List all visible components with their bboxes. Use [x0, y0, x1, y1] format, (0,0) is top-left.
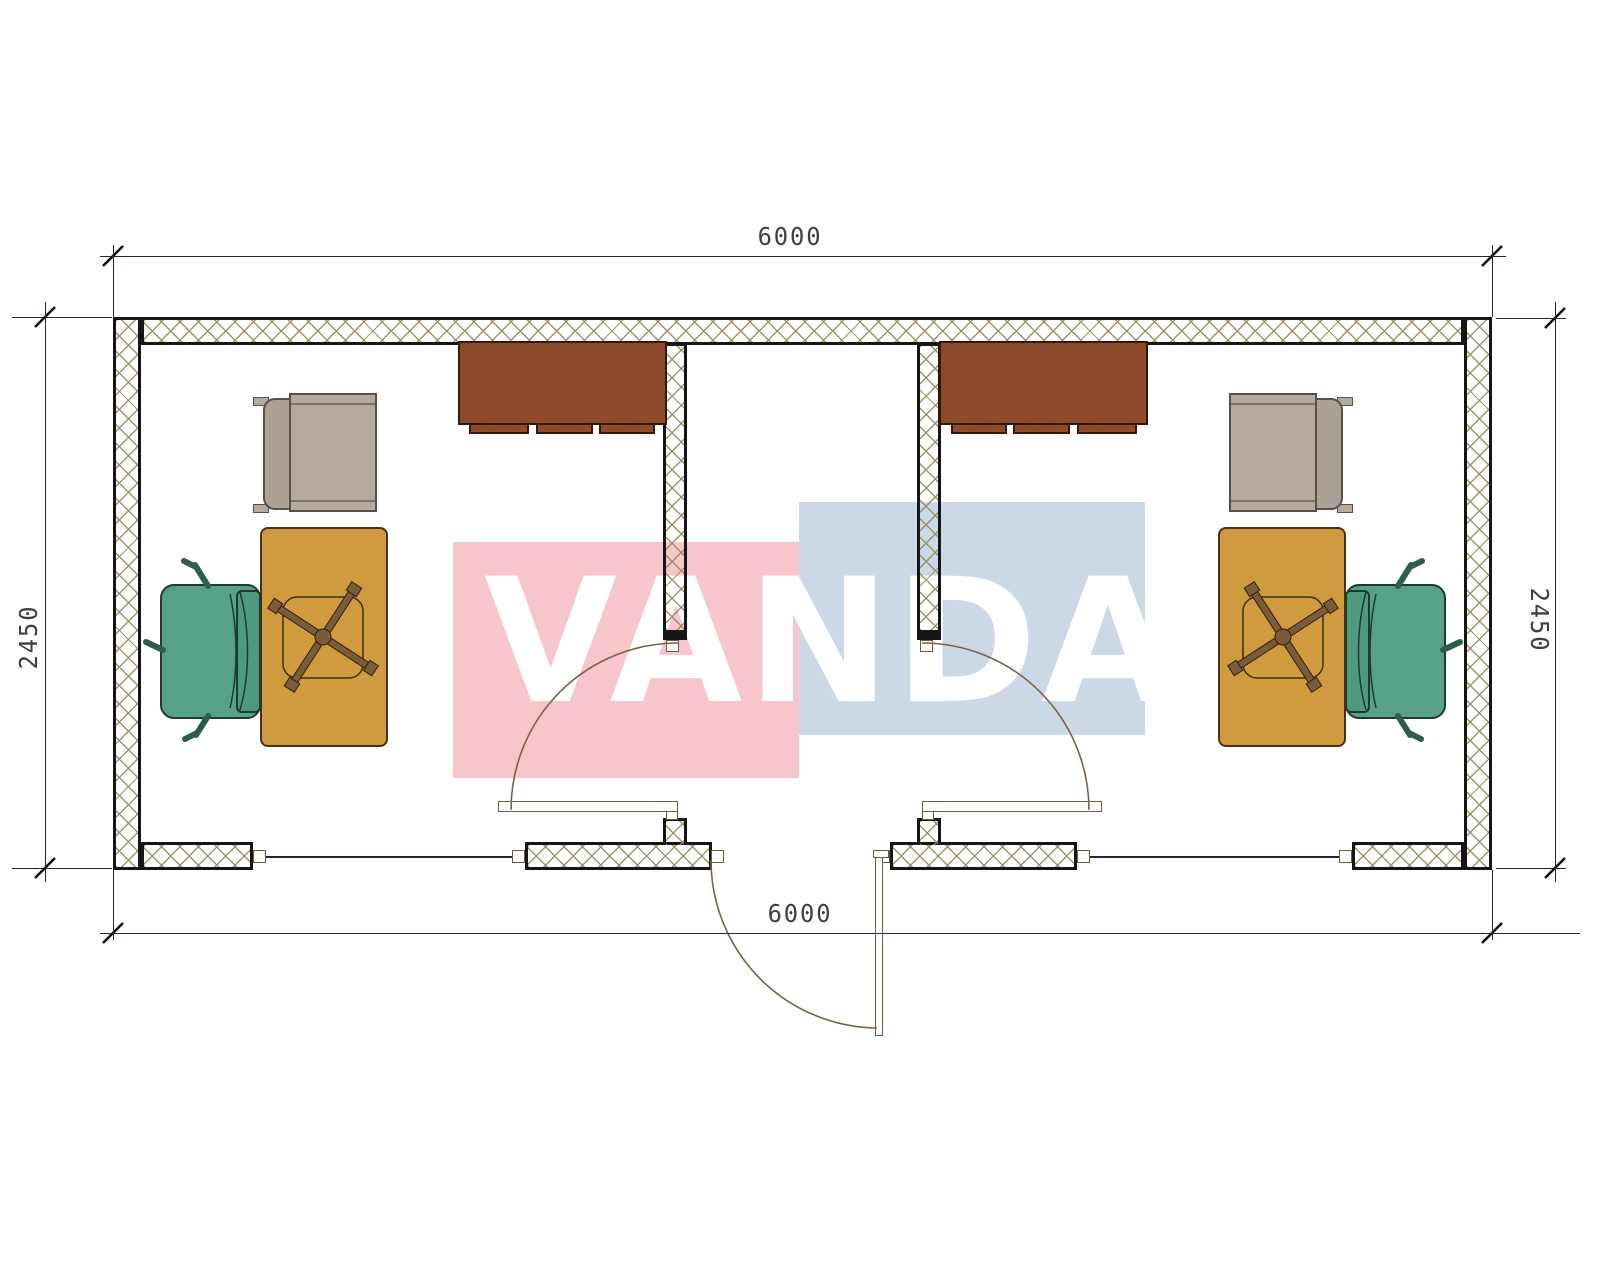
- top-wall: [141, 317, 1464, 345]
- bottom-extension-left: [113, 870, 114, 940]
- bottom-dimension-label: 6000: [753, 899, 848, 929]
- top-extension-right: [1492, 245, 1493, 317]
- right-dimension-label: 2450: [1524, 554, 1554, 687]
- cabinet-left: [458, 341, 667, 425]
- door-hinge-block: [920, 640, 933, 652]
- left-room-door-leaf: [498, 801, 678, 812]
- cabinet-left-drawer: [469, 423, 529, 434]
- wall-end-block: [1077, 850, 1090, 863]
- left-extension-bottom: [12, 868, 112, 869]
- right-door-post: [917, 818, 941, 845]
- cabinet-right-drawer: [951, 423, 1007, 434]
- left-wall: [113, 317, 141, 870]
- cabinet-right: [939, 341, 1148, 425]
- right-extension-bottom: [1496, 868, 1566, 869]
- right-partition-wall: [917, 343, 941, 640]
- right-extension-top: [1496, 318, 1566, 319]
- desk-right: [1218, 527, 1346, 747]
- left-window-sill: [266, 856, 512, 858]
- wall-end-block: [1339, 850, 1352, 863]
- left-dimension-line: [45, 302, 46, 882]
- armchair-left-seat: [289, 393, 377, 512]
- wall-end-block: [253, 850, 266, 863]
- cabinet-right-drawer: [1013, 423, 1070, 434]
- door-hinge-block: [666, 640, 679, 652]
- bottom-wall-left-segment: [141, 842, 253, 870]
- floor-plan-drawing: VANDA: [0, 0, 1600, 1280]
- wall-end-block: [711, 850, 724, 863]
- right-dimension-line: [1555, 302, 1556, 882]
- right-wall: [1464, 317, 1492, 870]
- left-extension-top: [12, 317, 112, 318]
- armchair-left-back: [263, 398, 291, 510]
- watermark-text: VANDA: [484, 556, 1164, 728]
- armchair-detail-lines: [291, 404, 1315, 501]
- desk-left: [260, 527, 388, 747]
- cabinet-right-drawer: [1077, 423, 1137, 434]
- top-extension-left: [113, 245, 114, 317]
- main-door-leaf: [875, 857, 883, 1036]
- wall-end-block: [512, 850, 525, 863]
- left-dimension-label: 2450: [14, 571, 44, 704]
- left-room-door-stub: [666, 811, 678, 820]
- right-room-door-stub: [922, 811, 934, 820]
- top-dimension-label: 6000: [743, 222, 838, 252]
- armchair-right-seat: [1229, 393, 1317, 512]
- bottom-extension-right: [1492, 870, 1493, 940]
- right-window-sill: [1090, 856, 1339, 858]
- cabinet-left-drawer: [536, 423, 593, 434]
- armchair-right-back: [1315, 398, 1343, 510]
- top-dimension-line: [100, 256, 1506, 257]
- bottom-wall-mid-left-segment: [525, 842, 712, 870]
- bottom-dimension-line: [100, 933, 1580, 934]
- left-door-post: [663, 818, 687, 845]
- right-room-door-leaf: [922, 801, 1102, 812]
- cabinet-left-drawer: [599, 423, 655, 434]
- main-door-swing-arc: [711, 860, 877, 1028]
- office-chair-left-back: [236, 590, 261, 713]
- bottom-wall-mid-right-segment: [890, 842, 1077, 870]
- bottom-wall-right-segment: [1352, 842, 1464, 870]
- office-chair-right-back: [1345, 590, 1370, 713]
